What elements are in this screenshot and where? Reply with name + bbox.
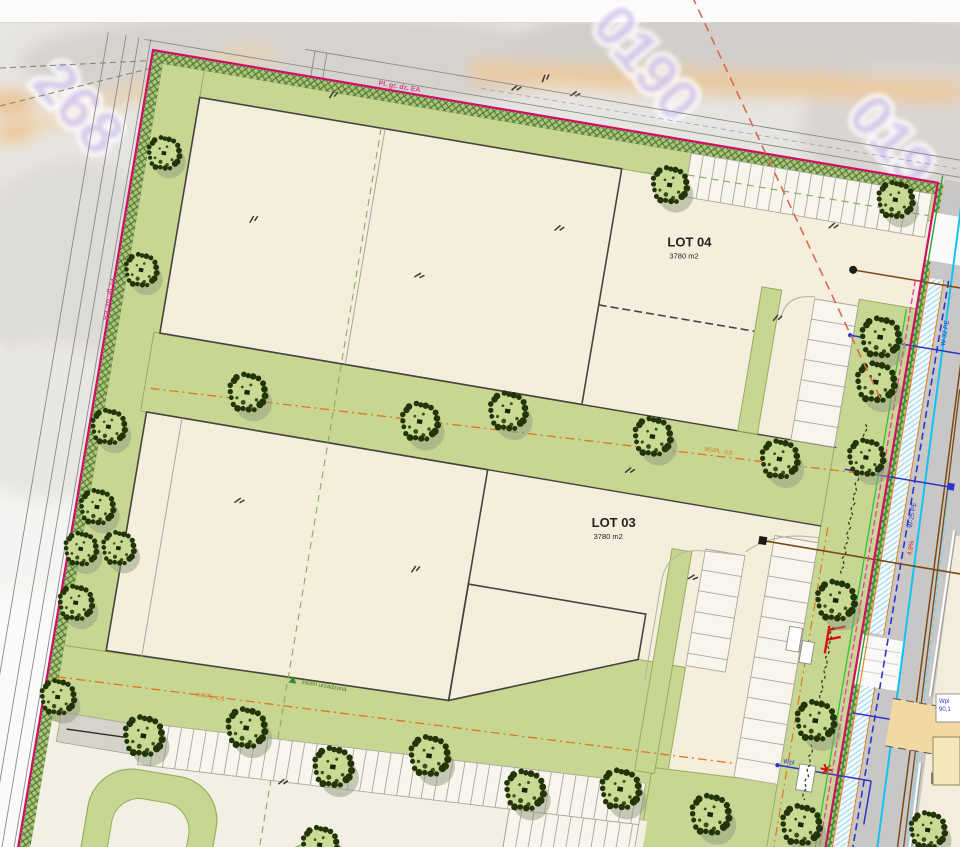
svg-text:LOT 04: LOT 04	[667, 235, 712, 250]
svg-text:LOT 03: LOT 03	[592, 515, 636, 530]
svg-text:90,1: 90,1	[939, 707, 951, 713]
svg-text:3780 m2: 3780 m2	[594, 532, 623, 541]
svg-text:Wpl: Wpl	[939, 699, 949, 705]
svg-text:3780 m2: 3780 m2	[669, 252, 698, 261]
